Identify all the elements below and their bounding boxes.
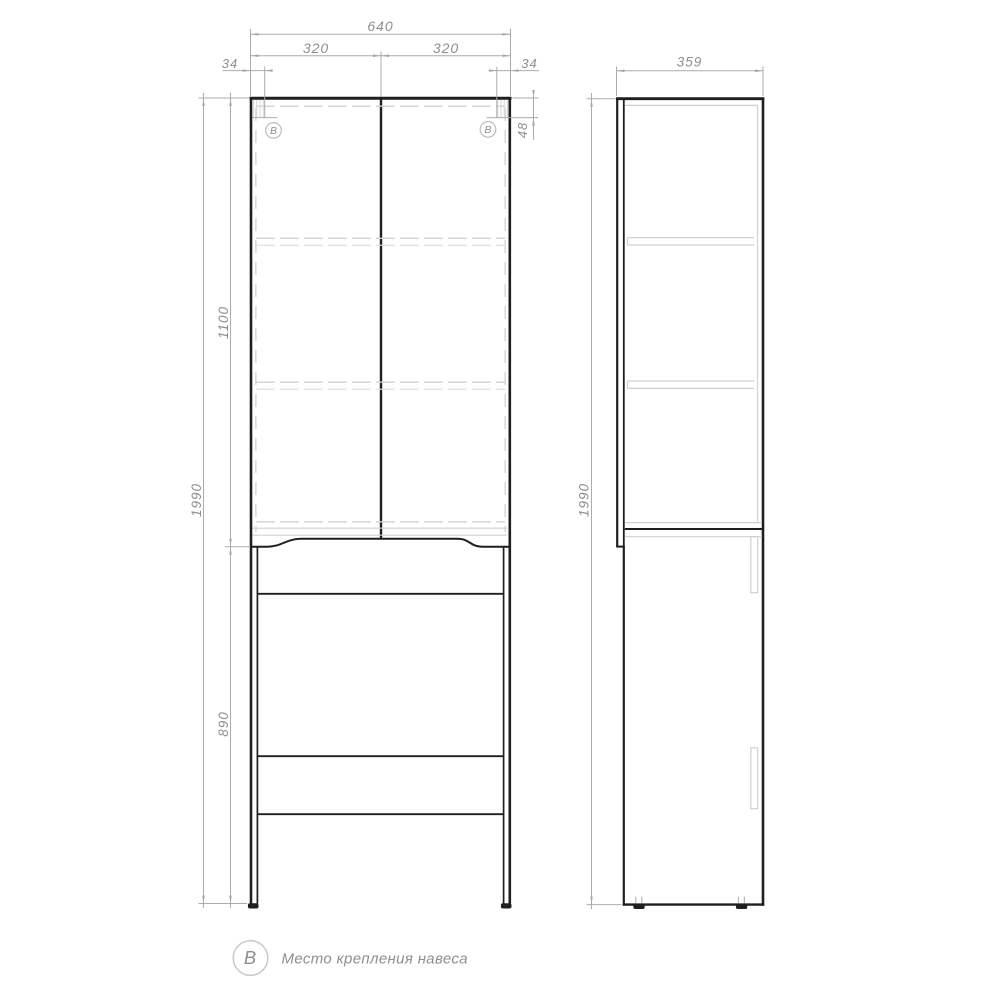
svg-text:890: 890	[216, 711, 231, 737]
svg-text:Место крепления навеса: Место крепления навеса	[282, 951, 468, 968]
svg-text:В: В	[484, 124, 491, 136]
svg-text:359: 359	[677, 55, 703, 70]
svg-text:В: В	[244, 947, 256, 968]
svg-text:В: В	[270, 125, 277, 137]
svg-text:48: 48	[515, 122, 530, 138]
svg-text:34: 34	[222, 56, 238, 71]
svg-text:1100: 1100	[216, 306, 231, 339]
svg-text:320: 320	[433, 40, 459, 56]
svg-text:1990: 1990	[189, 483, 204, 517]
svg-text:640: 640	[367, 18, 393, 34]
svg-text:34: 34	[521, 56, 537, 71]
svg-text:1990: 1990	[577, 483, 592, 517]
svg-text:320: 320	[303, 40, 329, 56]
